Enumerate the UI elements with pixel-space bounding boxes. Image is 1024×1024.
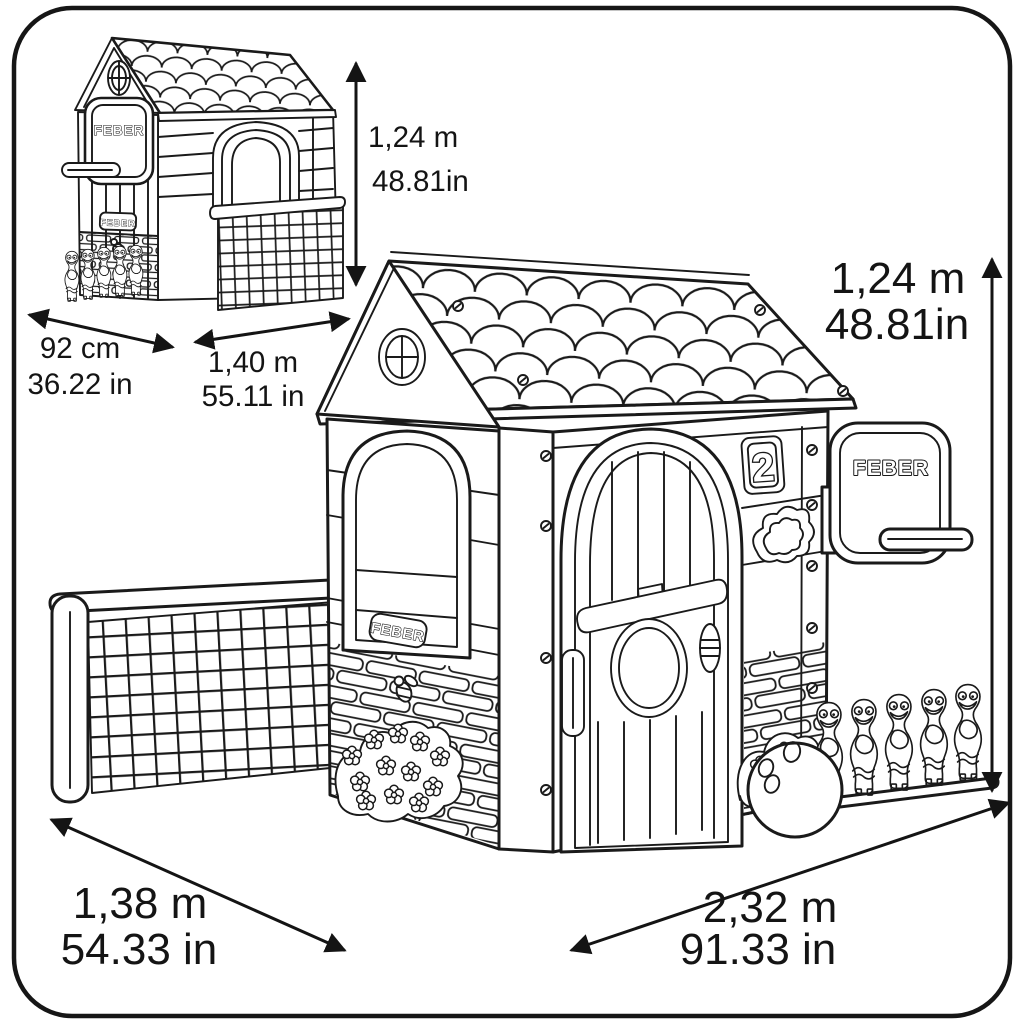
small-backboard-logo: FEBER (94, 123, 145, 138)
left-wall: FEBER (327, 419, 499, 849)
small-bowling-pins (65, 245, 143, 301)
small-basketball-hoop (62, 163, 120, 177)
small-feber-plate-text: FEBER (100, 217, 136, 228)
back-width-metric: 1,40 m (208, 346, 298, 379)
back-width-imperial: 55.11 in (202, 380, 305, 413)
basketball-backboard-logo: FEBER (853, 457, 929, 480)
number-plaque-text: 2 (751, 445, 776, 490)
small-feber-plate: FEBER (100, 212, 137, 230)
footprint-width-imperial: 91.33 in (680, 925, 837, 974)
back-depth-metric: 92 cm (40, 332, 120, 365)
diagram-canvas: FEBER (0, 0, 1024, 1024)
number-plaque: 2 (741, 436, 785, 495)
back-height-imperial: 48.81in (372, 165, 469, 198)
back-depth-imperial: 36.22 in (28, 368, 133, 401)
small-house-back-view: FEBER FEBER (62, 38, 345, 310)
door (561, 429, 742, 852)
footprint-depth-imperial: 54.33 in (61, 925, 218, 974)
door-porthole-window (611, 619, 687, 717)
door-hinge (700, 624, 720, 672)
back-height-metric: 1,24 m (368, 121, 458, 154)
basketball-hoop (880, 529, 972, 550)
small-goal-net (210, 197, 345, 310)
bowling-ball (748, 740, 842, 837)
front-height-metric: 1,24 m (831, 254, 966, 303)
basketball-backboard: FEBER (822, 423, 972, 563)
footprint-depth-metric: 1,38 m (73, 879, 208, 928)
small-right-face (158, 110, 345, 310)
dimension-diagram: FEBER (0, 0, 1024, 1024)
front-height-imperial: 48.81in (825, 300, 969, 349)
corner-post (499, 428, 553, 852)
